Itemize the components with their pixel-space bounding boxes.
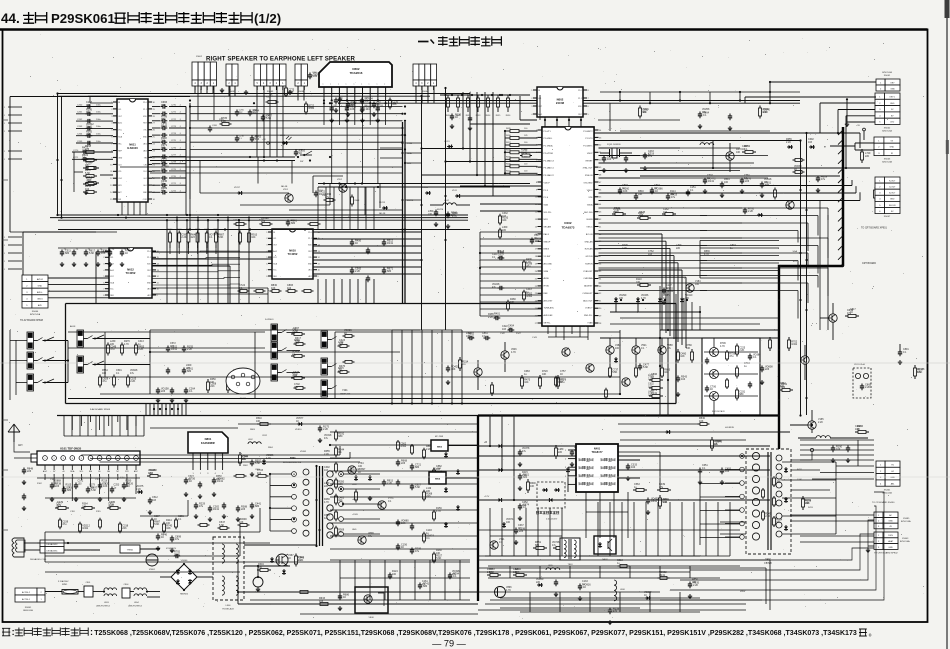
svg-text:1K: 1K: [742, 148, 745, 151]
svg-text:AV-IN: AV-IN: [70, 325, 76, 328]
svg-text:4.7K: 4.7K: [720, 345, 725, 348]
svg-text:47u: 47u: [161, 118, 166, 121]
svg-text:o: o: [320, 411, 321, 413]
svg-text:103: 103: [294, 386, 299, 389]
svg-text:103: 103: [663, 211, 668, 214]
svg-text:680: 680: [535, 544, 540, 547]
svg-text:VDD.P: VDD.P: [544, 182, 551, 184]
svg-text:C61: C61: [349, 105, 352, 107]
svg-text:o: o: [140, 411, 141, 413]
svg-text:+B: +B: [484, 441, 487, 444]
svg-text:1K: 1K: [125, 252, 128, 255]
svg-text:VDDC: VDDC: [587, 190, 593, 192]
svg-text:104: 104: [86, 104, 91, 107]
svg-text:0.1: 0.1: [462, 363, 466, 366]
svg-text:P1.0/T1: P1.0/T1: [544, 131, 552, 133]
svg-text:223: 223: [191, 236, 196, 239]
svg-text:VPE: VPE: [588, 197, 593, 199]
svg-text:5.6K: 5.6K: [612, 371, 617, 374]
svg-text:47u: 47u: [552, 544, 557, 547]
svg-text:180V: 180V: [888, 535, 893, 537]
svg-text:AUD.DEF: AUD.DEF: [544, 314, 554, 317]
svg-text:L102: L102: [444, 200, 450, 202]
svg-text:TH801: TH801: [127, 550, 134, 552]
svg-text:2.2K: 2.2K: [187, 348, 192, 351]
svg-text:4.7K: 4.7K: [526, 261, 531, 264]
svg-text:XS401: XS401: [884, 490, 891, 492]
svg-text:104: 104: [502, 219, 507, 222]
svg-text:47u: 47u: [148, 472, 153, 475]
svg-text:103: 103: [152, 499, 157, 502]
svg-text:SCL: SCL: [110, 289, 113, 291]
svg-text:10K: 10K: [256, 420, 261, 423]
svg-text:VD217: VD217: [234, 187, 241, 189]
svg-text:10K: 10K: [239, 521, 244, 524]
svg-text:47u: 47u: [175, 538, 180, 541]
svg-text:103: 103: [78, 482, 83, 485]
svg-text:AV1: AV1: [309, 269, 312, 272]
svg-text:P1.0: P1.0: [143, 102, 147, 104]
svg-text:47u: 47u: [714, 443, 719, 446]
svg-text:2.2K: 2.2K: [181, 236, 186, 239]
svg-text:SIF.PLL: SIF.PLL: [544, 322, 552, 324]
svg-text:1N41: 1N41: [213, 508, 220, 511]
svg-text:o: o: [680, 411, 681, 413]
svg-text:C263: C263: [77, 126, 83, 128]
svg-text:GND: GND: [38, 285, 43, 287]
svg-text:103: 103: [648, 253, 653, 256]
svg-text:220: 220: [110, 343, 115, 346]
svg-text:104: 104: [287, 287, 292, 290]
svg-text:223: 223: [210, 385, 215, 388]
svg-text:TO CRT BOARD XP902: TO CRT BOARD XP902: [874, 552, 898, 555]
svg-text:GND: GND: [888, 521, 893, 523]
svg-text:0.1: 0.1: [82, 157, 86, 160]
svg-text:680: 680: [67, 489, 72, 492]
svg-text:o: o: [369, 84, 371, 85]
svg-text:47u: 47u: [729, 355, 734, 358]
svg-text:BZ507-03A: BZ507-03A: [901, 520, 911, 523]
svg-text:104: 104: [85, 188, 90, 191]
svg-text:C271: C271: [171, 112, 177, 114]
svg-text:C279: C279: [171, 169, 177, 171]
svg-text:C278: C278: [171, 162, 177, 164]
svg-text:o: o: [360, 299, 361, 301]
svg-text:165V: 165V: [740, 591, 746, 593]
svg-text:RESET: RESET: [586, 160, 594, 162]
svg-text:104: 104: [725, 470, 730, 473]
svg-text:100u: 100u: [364, 100, 368, 102]
svg-text:TDA9373: TDA9373: [562, 226, 575, 230]
svg-text:47u: 47u: [102, 380, 107, 383]
svg-text:2.2K: 2.2K: [622, 247, 627, 250]
svg-text:o: o: [640, 137, 641, 139]
svg-text:P1.0: P1.0: [147, 251, 151, 253]
svg-text:TUNE.AGC: TUNE.AGC: [544, 307, 555, 310]
svg-text:C260: C260: [77, 104, 83, 106]
svg-text:47u: 47u: [671, 196, 676, 199]
svg-text:2.2K: 2.2K: [693, 584, 698, 587]
svg-text:VDDA: VDDA: [587, 204, 593, 207]
svg-text:BZ507-04A: BZ507-04A: [900, 540, 910, 543]
svg-text:BLKIN: BLKIN: [587, 219, 593, 221]
svg-text:AGC: AGC: [43, 470, 48, 473]
svg-text:680: 680: [415, 466, 420, 469]
svg-text:10K: 10K: [510, 301, 515, 304]
svg-text:BCL.IN: BCL.IN: [586, 234, 593, 236]
svg-text:o: o: [60, 211, 61, 213]
svg-text:T402: T402: [765, 558, 771, 561]
svg-text:2.2K: 2.2K: [648, 377, 653, 380]
svg-text:47u: 47u: [199, 505, 204, 508]
svg-text:220: 220: [502, 229, 507, 232]
svg-text:SCL: SCL: [118, 144, 121, 146]
svg-text:4.7K: 4.7K: [102, 482, 107, 485]
svg-text:SCL: SCL: [273, 270, 276, 272]
svg-text:5.6K: 5.6K: [643, 366, 648, 369]
svg-text:1N41: 1N41: [319, 193, 326, 196]
svg-text:1N41: 1N41: [659, 574, 666, 577]
svg-text:C277: C277: [171, 155, 177, 157]
svg-text:SND.IF: SND.IF: [544, 241, 551, 243]
svg-text:223: 223: [161, 390, 166, 393]
svg-text:V201: V201: [283, 189, 289, 191]
svg-text:C272: C272: [171, 119, 177, 121]
svg-text:o: o: [820, 599, 821, 601]
svg-text:680: 680: [65, 252, 70, 255]
svg-text:680: 680: [494, 315, 499, 318]
svg-text:10K: 10K: [451, 368, 456, 371]
svg-text:2.2K: 2.2K: [138, 348, 143, 351]
svg-text:Y201: Y201: [342, 389, 348, 392]
svg-text:IF.VID: IF.VID: [544, 286, 550, 288]
svg-text:P1.6/INT2: P1.6/INT2: [583, 131, 593, 133]
svg-text:47u: 47u: [522, 450, 527, 453]
svg-text:KEY: KEY: [891, 82, 896, 84]
svg-text:o: o: [390, 89, 391, 91]
svg-text:104: 104: [607, 158, 612, 161]
svg-text:REF: REF: [118, 150, 122, 152]
svg-text:XS403: XS403: [902, 538, 909, 540]
svg-text:MC-7805: MC-7805: [433, 468, 442, 470]
svg-text:C272: C272: [171, 190, 177, 192]
svg-text:ADC: ADC: [134, 470, 139, 473]
svg-text:1N41: 1N41: [791, 343, 798, 346]
svg-text:V202: V202: [337, 179, 343, 181]
svg-text:100u: 100u: [96, 104, 102, 106]
svg-text:o: o: [140, 211, 141, 213]
svg-text:103: 103: [808, 141, 813, 144]
svg-text:1K: 1K: [343, 596, 346, 599]
svg-text:680: 680: [255, 505, 260, 508]
svg-text:1N41: 1N41: [651, 500, 658, 503]
svg-text:HCSS5-A33: HCSS5-A33: [222, 608, 234, 611]
svg-text:220: 220: [186, 367, 191, 370]
svg-text:G2/Y.IN: G2/Y.IN: [585, 256, 593, 258]
svg-text:103: 103: [522, 504, 527, 507]
svg-text:47u: 47u: [526, 265, 531, 268]
svg-text:RBV606: RBV606: [180, 594, 189, 596]
svg-text:1K: 1K: [534, 237, 537, 240]
svg-text:47u: 47u: [415, 550, 420, 553]
svg-text:680: 680: [558, 381, 563, 384]
svg-text:XTL: XTL: [143, 130, 146, 132]
svg-text:47u: 47u: [54, 482, 59, 485]
svg-text:223: 223: [519, 530, 524, 533]
svg-text:SW: SW: [300, 161, 303, 163]
svg-text:C270: C270: [171, 105, 177, 107]
svg-text:223: 223: [27, 470, 32, 473]
svg-text:1K: 1K: [86, 111, 89, 114]
svg-text:220: 220: [536, 581, 541, 584]
svg-text:100: 100: [663, 501, 668, 504]
svg-text:R2/H.IN: R2/H.IN: [585, 264, 593, 266]
svg-text:C264: C264: [77, 134, 83, 136]
svg-text:2.2K: 2.2K: [294, 342, 299, 345]
svg-text:5.6K: 5.6K: [91, 489, 96, 492]
svg-text:AV2: AV2: [309, 275, 312, 278]
svg-text:NPO: NPO: [544, 219, 549, 221]
svg-text:L806: L806: [226, 605, 232, 607]
svg-text:10K: 10K: [623, 190, 628, 193]
svg-text:223: 223: [122, 527, 127, 530]
svg-text:BZ507-05A: BZ507-05A: [882, 129, 892, 132]
svg-text:1K: 1K: [288, 557, 291, 560]
svg-text:AUDEXT: AUDEXT: [584, 285, 593, 288]
svg-text:2.2K: 2.2K: [488, 316, 493, 319]
svg-text:DEGAUSS1: DEGAUSS1: [47, 550, 59, 553]
svg-text:220: 220: [676, 247, 681, 250]
svg-text:XS001: XS001: [884, 75, 891, 77]
svg-text:100: 100: [102, 372, 107, 375]
svg-text:L101 4.5uH: L101 4.5uH: [854, 364, 865, 366]
svg-text:10K: 10K: [680, 355, 685, 358]
svg-text:10K: 10K: [686, 347, 691, 350]
svg-text:2: 2: [565, 459, 566, 461]
svg-text:0.1: 0.1: [508, 327, 512, 330]
svg-text:BZ507-02A: BZ507-02A: [882, 71, 892, 74]
svg-text:1N41: 1N41: [82, 527, 89, 530]
svg-text:AVD-L: AVD-L: [37, 291, 44, 294]
svg-text:2.2K: 2.2K: [522, 474, 527, 477]
svg-text:o: o: [608, 129, 609, 131]
svg-text:GND.AN: GND.AN: [585, 240, 593, 243]
svg-text:XS602: XS602: [196, 56, 203, 58]
svg-text:VDDP: VDDP: [587, 153, 593, 155]
svg-text:220: 220: [865, 155, 870, 158]
svg-text:FOCUS PACK: FOCUS PACK: [712, 410, 726, 413]
svg-text:AC750-1: AC750-1: [22, 598, 31, 601]
svg-text:100u: 100u: [338, 100, 342, 102]
svg-text:100: 100: [358, 465, 363, 468]
svg-text:OSCGND: OSCGND: [584, 182, 594, 184]
svg-text:4.7K: 4.7K: [324, 501, 329, 504]
svg-text:4.7K: 4.7K: [506, 589, 511, 592]
svg-text:P1.1: P1.1: [143, 109, 147, 111]
svg-text:TDA2616: TDA2616: [350, 71, 363, 75]
svg-text:XS485: XS485: [903, 518, 910, 520]
svg-text:1K: 1K: [654, 187, 657, 190]
svg-text:FR01: FR01: [62, 584, 68, 586]
svg-text:103: 103: [170, 345, 175, 348]
svg-text:P1.0: P1.0: [308, 232, 312, 234]
svg-text:GND: GND: [890, 103, 895, 105]
svg-text:o: o: [376, 84, 378, 85]
svg-text:AV2: AV2: [144, 149, 147, 152]
svg-text:LF1: LF1: [273, 238, 276, 240]
svg-text:100u: 100u: [96, 126, 102, 128]
svg-text:VC.SW: VC.SW: [544, 256, 551, 258]
svg-text:SCL.PLL: SCL.PLL: [544, 212, 553, 214]
svg-text:2.2K: 2.2K: [130, 380, 135, 383]
svg-text:LF1: LF1: [118, 109, 121, 111]
svg-text:103: 103: [855, 428, 860, 431]
svg-text:10K: 10K: [699, 420, 704, 423]
svg-text:1K: 1K: [850, 311, 853, 314]
svg-text:R023: R023: [476, 115, 481, 117]
svg-text:T25SK068 ,T25SK068V,T25SK076 ,: T25SK068 ,T25SK068V,T25SK076 ,T25SK120 ,…: [94, 630, 857, 637]
svg-text:2.2K: 2.2K: [355, 270, 360, 273]
svg-text:o: o: [480, 289, 481, 291]
svg-text:LF1: LF1: [110, 257, 113, 259]
svg-text:223: 223: [745, 180, 750, 183]
svg-text:4.7K: 4.7K: [338, 370, 343, 373]
svg-text:5.6K: 5.6K: [161, 161, 166, 164]
svg-text:0.1: 0.1: [209, 236, 213, 239]
svg-text:DEC.DIG: DEC.DIG: [584, 212, 593, 214]
svg-text:XTAL.OUT: XTAL.OUT: [583, 167, 594, 170]
svg-text:o: o: [440, 411, 441, 413]
svg-text:220: 220: [324, 485, 329, 488]
svg-text:2.2K: 2.2K: [66, 486, 71, 489]
svg-text:BM: BM: [89, 471, 92, 473]
svg-text:1K: 1K: [355, 242, 358, 245]
svg-text:1N41: 1N41: [86, 126, 93, 129]
svg-text:P3.2/ADC2: P3.2/ADC2: [544, 174, 555, 177]
svg-text:2.2K: 2.2K: [786, 141, 791, 144]
svg-text:5.6K: 5.6K: [415, 486, 420, 489]
svg-text:S-VIDEO: S-VIDEO: [265, 319, 274, 321]
svg-text:SND.PLL: SND.PLL: [584, 315, 593, 317]
svg-text:AVL/2ND: AVL/2ND: [544, 263, 553, 266]
svg-text:10K: 10K: [638, 193, 643, 196]
svg-text:GND: GND: [890, 199, 895, 201]
svg-text:1K: 1K: [296, 420, 299, 423]
svg-text:100u: 100u: [96, 141, 102, 143]
svg-text:24C08: 24C08: [556, 101, 565, 105]
svg-text:10K: 10K: [542, 373, 547, 376]
svg-text:o: o: [500, 411, 501, 413]
svg-text:o: o: [330, 84, 332, 85]
svg-text:C270: C270: [171, 176, 177, 178]
svg-text:SIF: SIF: [118, 199, 121, 201]
svg-text:XS007: XS007: [884, 216, 891, 218]
svg-text:1N41: 1N41: [400, 445, 407, 448]
svg-text:+12V: +12V: [484, 496, 490, 498]
svg-text:5.6K: 5.6K: [255, 462, 260, 465]
svg-text:104: 104: [365, 108, 370, 111]
svg-text:0.1: 0.1: [753, 356, 757, 359]
svg-text:100: 100: [780, 385, 785, 388]
svg-text:+5V: +5V: [856, 125, 860, 127]
svg-text:1K: 1K: [127, 485, 130, 488]
svg-text:o: o: [150, 91, 151, 93]
svg-text:2.2K: 2.2K: [638, 215, 643, 218]
svg-text:VD218: VD218: [422, 187, 429, 189]
svg-text:o: o: [160, 299, 161, 301]
svg-text:ILN1100: ILN1100: [127, 146, 138, 150]
svg-text:P29SK061: P29SK061: [51, 11, 115, 26]
svg-text::: :: [12, 627, 15, 637]
svg-text:LINE-FILTER-S: LINE-FILTER-S: [96, 606, 111, 608]
svg-text:CRT BOARD: CRT BOARD: [862, 262, 876, 265]
svg-text:47u: 47u: [452, 573, 457, 576]
svg-text:DEGAUSS2: DEGAUSS2: [47, 543, 59, 546]
svg-text:AC250-2: AC250-2: [22, 591, 31, 594]
svg-text:2.2K: 2.2K: [86, 133, 91, 136]
svg-text:100: 100: [82, 505, 87, 508]
svg-text:10K: 10K: [636, 281, 641, 284]
svg-text:1N41: 1N41: [708, 180, 715, 183]
svg-text:o: o: [470, 91, 471, 93]
svg-text:CHROMA: CHROMA: [583, 277, 593, 280]
svg-text:XS801: XS801: [25, 607, 32, 609]
svg-text:+190V: +190V: [352, 514, 359, 516]
svg-text:2.2K: 2.2K: [136, 488, 141, 491]
svg-text:1K: 1K: [154, 518, 157, 521]
svg-text:680: 680: [387, 270, 392, 273]
svg-text:U101 TDF-3W35: U101 TDF-3W35: [60, 447, 82, 451]
svg-text:10K: 10K: [161, 168, 166, 171]
svg-text:103: 103: [648, 385, 653, 388]
svg-text:SDM: SDM: [544, 271, 549, 273]
svg-text:4.7K: 4.7K: [124, 343, 129, 346]
svg-text:TC4052: TC4052: [126, 271, 136, 275]
svg-text:1N41: 1N41: [526, 295, 533, 298]
svg-text:1K: 1K: [455, 116, 458, 119]
svg-text:P1.1: P1.1: [578, 98, 582, 100]
svg-text:o: o: [346, 84, 348, 85]
svg-text:o: o: [200, 411, 201, 413]
svg-text:P1.0: P1.0: [578, 90, 582, 92]
svg-text:MUTE: MUTE: [437, 209, 444, 211]
svg-text:C261: C261: [77, 112, 83, 114]
svg-text:KA2S0880F: KA2S0880F: [201, 441, 216, 445]
svg-text:C276: C276: [171, 147, 177, 149]
svg-text:N801: N801: [205, 437, 212, 441]
svg-text:103: 103: [324, 469, 329, 472]
svg-text:104: 104: [338, 499, 343, 502]
svg-text:223: 223: [776, 481, 781, 484]
svg-text:100u: 100u: [96, 112, 102, 114]
svg-text:100: 100: [392, 573, 397, 576]
svg-text:C6: C6: [76, 249, 78, 251]
svg-text:AV1: AV1: [144, 143, 147, 146]
svg-text:o: o: [338, 84, 340, 85]
svg-text:GND: GND: [890, 88, 895, 90]
svg-text:H-DRIVE: H-DRIVE: [725, 427, 735, 429]
svg-text:VD810: VD810: [295, 429, 302, 431]
svg-text:0.1: 0.1: [703, 114, 707, 117]
svg-text:LED: LED: [890, 122, 894, 124]
svg-text:XS002: XS002: [884, 128, 891, 130]
svg-text:223: 223: [55, 485, 60, 488]
svg-text:1N41: 1N41: [387, 242, 394, 245]
svg-text:R024: R024: [486, 115, 491, 117]
svg-text:47u: 47u: [917, 371, 922, 374]
svg-text:o: o: [740, 137, 741, 139]
svg-text:1N41: 1N41: [171, 348, 178, 351]
